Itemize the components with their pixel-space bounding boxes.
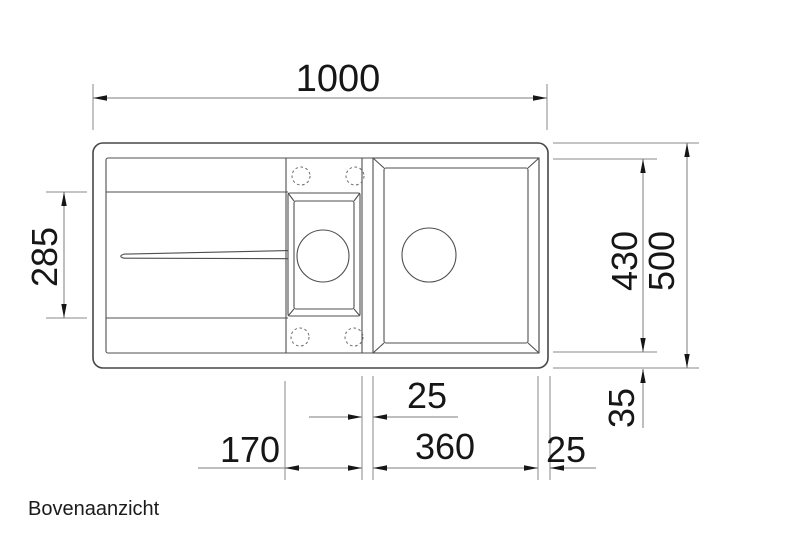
dim-overall-depth-label: 500 [641,231,682,291]
dim-main-bowl-width-label: 360 [415,426,475,467]
arrow-head [684,354,689,368]
arrow-head [373,465,387,470]
view-title: Bovenaanzicht [28,498,160,520]
drawing-page: 1000 285 430 500 35 25 [0,0,800,534]
dim-rear-rim: 35 [601,369,646,428]
dim-divider-width: 25 [309,375,458,420]
arrow-head [285,465,299,470]
sink-outline [93,143,548,368]
arrow-head [640,159,645,173]
arrow-head [348,465,362,470]
arrow-head [61,192,66,206]
dim-half-bowl-module-label: 170 [220,429,280,470]
arrow-head [533,95,547,100]
dim-side-rim-label: 25 [546,429,586,470]
arrow-head [373,414,387,419]
dim-chain-bottom: 170 360 25 [198,376,596,480]
sink-dimension-drawing: 1000 285 430 500 35 25 [0,0,800,534]
arrow-head [61,304,66,318]
dim-overall-width: 1000 [93,58,547,130]
arrow-head [93,95,107,100]
dim-divider-width-label: 25 [407,375,447,416]
arrow-head [348,414,362,419]
dim-rear-rim-label: 35 [601,388,642,428]
sink-top-view [93,143,548,368]
dim-drainer-depth: 285 [24,192,87,318]
arrow-head [640,369,645,383]
arrow-head [640,338,645,352]
arrow-head [684,143,689,157]
arrow-head [524,465,538,470]
dim-drainer-depth-label: 285 [24,227,65,287]
dim-bowl-depth-label: 430 [604,231,645,291]
dim-overall-width-label: 1000 [296,58,381,100]
